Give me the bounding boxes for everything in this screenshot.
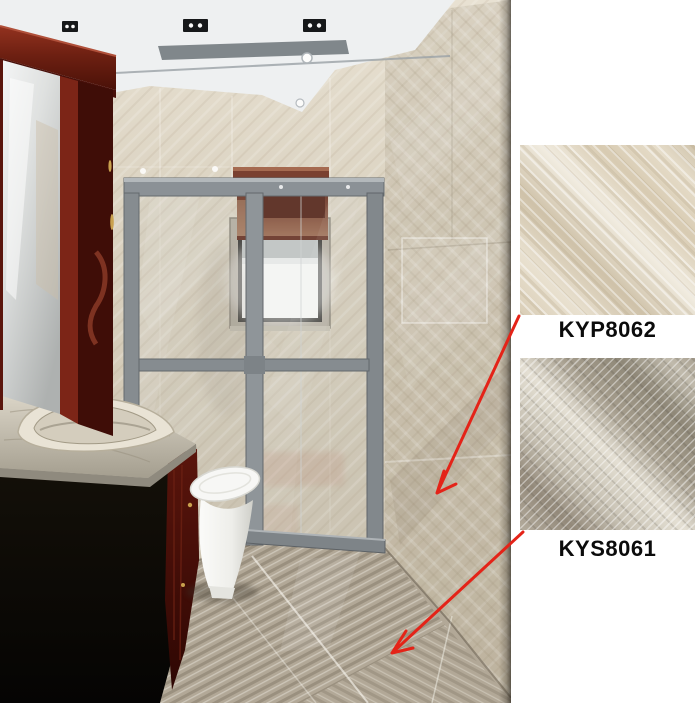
bathroom-scene — [0, 0, 511, 703]
tile-code-label: KYS8061 — [520, 536, 695, 562]
crossbar-bracket — [244, 356, 265, 374]
round-downlight — [302, 53, 312, 63]
ceiling-spotlight-fixture — [303, 19, 326, 32]
bathroom-render-photo — [0, 0, 511, 703]
mirror-frame — [60, 76, 78, 424]
cabinet-knob — [181, 583, 185, 587]
tile-code-label: KYP8062 — [520, 317, 695, 343]
cabinet-handle — [110, 214, 114, 230]
tile-swatch-kys8061 — [520, 358, 695, 530]
mirror-cabinet — [0, 26, 116, 436]
recessed-light-glow — [140, 168, 146, 174]
ceiling-spotlight-fixture — [183, 19, 208, 32]
wall-niche-panel — [402, 238, 487, 323]
wall-corner-shadow — [499, 0, 511, 703]
cabinet-knob — [188, 503, 192, 507]
cabinet-side-panel — [78, 81, 113, 436]
cabinet-handle — [108, 160, 111, 172]
recessed-light-glow — [212, 166, 218, 172]
tile-promo-collage: KYP8062 KYS8061 — [0, 0, 700, 703]
ceiling-spotlight-fixture — [62, 21, 78, 32]
round-downlight — [296, 99, 304, 107]
tile-swatch-kyp8062 — [520, 145, 695, 315]
